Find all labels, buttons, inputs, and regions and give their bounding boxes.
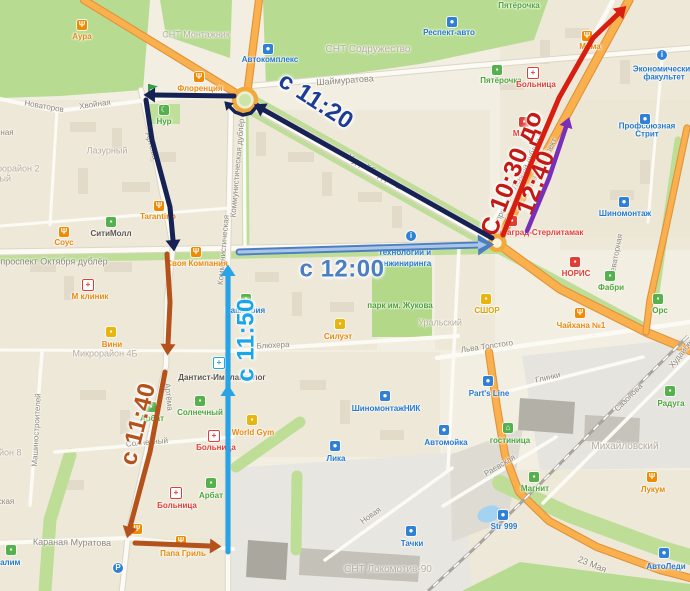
roundabout-center — [239, 94, 251, 106]
route-navy-khudayberdina — [264, 110, 492, 238]
route-brown-artyoma-arrowhead — [161, 344, 176, 356]
route-purple-lenina — [527, 127, 566, 231]
route-overlay-layer — [0, 0, 690, 591]
route-navy-west — [155, 95, 234, 96]
route-cyan-north-arrowhead — [221, 265, 236, 277]
route-brown-diagonal — [130, 372, 165, 527]
route-brown-artyoma — [167, 254, 170, 344]
route-brown-muratova-arrowhead — [210, 539, 222, 554]
route-navy-artyoma-arrowhead — [166, 239, 181, 251]
route-brown-muratova — [135, 543, 210, 546]
map-canvas[interactable]: НоваторовХвойнаяШаймуратоваЛазурныйСНТ С… — [0, 0, 690, 591]
route-brown-diagonal-arrowhead — [123, 525, 137, 538]
route-navy-artyoma — [146, 100, 173, 240]
